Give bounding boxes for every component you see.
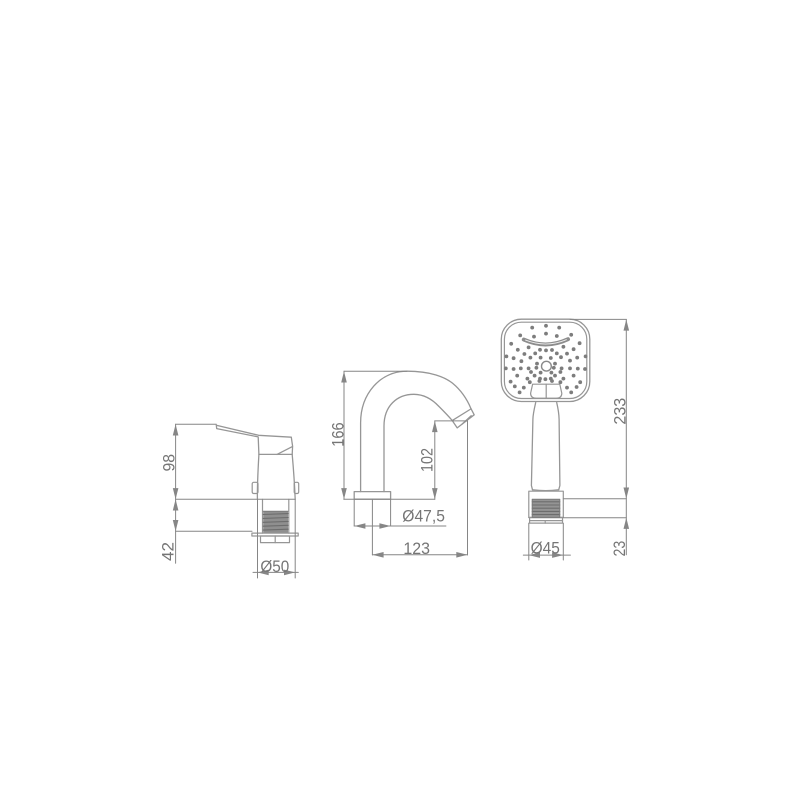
svg-text:233: 233 xyxy=(611,398,630,425)
svg-text:Ø47,5: Ø47,5 xyxy=(402,506,445,525)
svg-text:102: 102 xyxy=(417,448,436,472)
svg-text:Ø45: Ø45 xyxy=(531,538,560,557)
svg-text:Ø50: Ø50 xyxy=(260,557,289,576)
svg-text:23: 23 xyxy=(610,541,629,557)
svg-text:42: 42 xyxy=(159,542,178,561)
svg-text:166: 166 xyxy=(328,422,347,446)
svg-text:98: 98 xyxy=(160,454,179,472)
svg-text:123: 123 xyxy=(403,539,430,558)
